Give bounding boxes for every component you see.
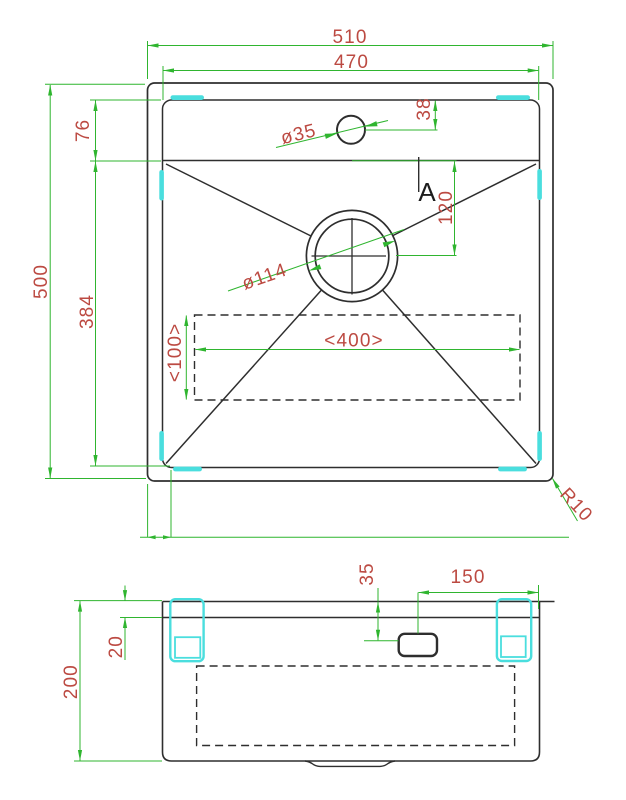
svg-text:150: 150	[450, 567, 485, 588]
svg-text:500: 500	[31, 264, 52, 299]
svg-text:<400>: <400>	[324, 331, 383, 352]
svg-text:470: 470	[334, 52, 369, 73]
svg-text:20: 20	[106, 635, 127, 658]
svg-text:384: 384	[77, 294, 98, 329]
svg-text:A: A	[418, 177, 436, 207]
svg-text:38: 38	[414, 97, 435, 120]
svg-text:<100>: <100>	[165, 323, 186, 382]
svg-text:510: 510	[332, 27, 367, 48]
svg-text:ø35: ø35	[279, 120, 319, 149]
svg-text:ø114: ø114	[239, 260, 290, 295]
svg-text:35: 35	[357, 562, 378, 585]
svg-text:R10: R10	[555, 484, 596, 526]
svg-text:200: 200	[61, 664, 82, 699]
svg-text:76: 76	[73, 119, 94, 142]
svg-text:120: 120	[436, 190, 457, 225]
